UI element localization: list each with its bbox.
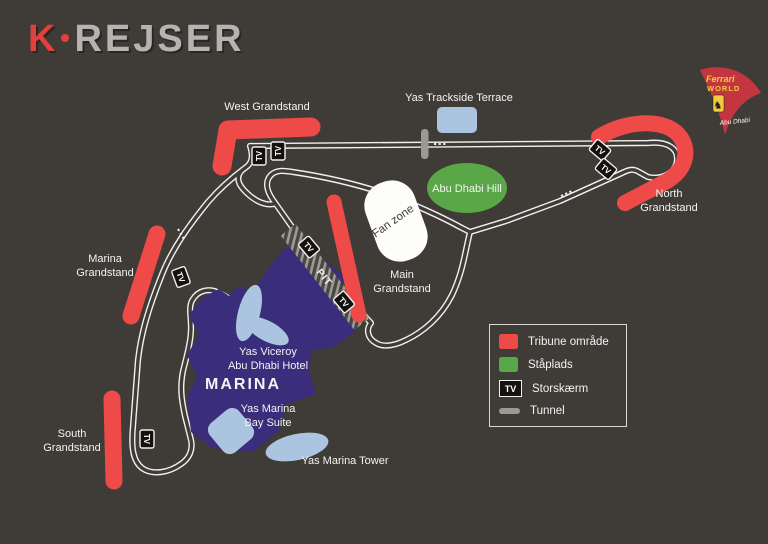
- tv-marker: TV: [252, 147, 266, 165]
- north-grandstand-label-2: Grandstand: [640, 202, 697, 214]
- legend-row-tribune: Tribune område: [499, 334, 620, 349]
- tv-swatch-icon: TV: [499, 380, 522, 397]
- circuit-map: PIT TV TV TV TV TV TV TV TV West Grandst…: [0, 0, 768, 544]
- legend-label-tunnel: Tunnel: [530, 405, 565, 417]
- ferrari-world-name-top: Ferrari: [706, 74, 735, 84]
- legend-label-staaplads: Ståplads: [528, 359, 573, 371]
- south-grandstand-shape: [112, 399, 114, 481]
- ferrari-world-name-bottom: WORLD: [707, 84, 740, 93]
- west-grandstand-label: West Grandstand: [224, 101, 309, 113]
- viceroy-label-1: Yas Viceroy: [239, 346, 297, 358]
- abu-dhabi-hill-label: Abu Dhabi Hill: [432, 183, 502, 195]
- yas-marina-tower-label: Yas Marina Tower: [301, 455, 388, 467]
- viceroy-label-2: Abu Dhabi Hotel: [228, 360, 308, 372]
- south-grandstand-label-2: Grandstand: [43, 442, 100, 454]
- tribune-swatch-icon: [499, 334, 518, 349]
- legend: Tribune område Ståplads TV Storskærm Tun…: [489, 324, 627, 427]
- legend-row-staaplads: Ståplads: [499, 357, 620, 372]
- tv-marker: TV: [171, 266, 190, 288]
- legend-label-tribune: Tribune område: [528, 336, 609, 348]
- legend-row-storskaerm: TV Storskærm: [499, 380, 620, 397]
- bay-suite-label-1: Yas Marina: [241, 403, 297, 415]
- tunnel-bar: [421, 129, 429, 159]
- north-grandstand-label-1: North: [656, 188, 683, 200]
- legend-label-storskaerm: Storskærm: [532, 383, 588, 395]
- marina-grandstand-label-2: Grandstand: [76, 267, 133, 279]
- trackside-terrace-label: Yas Trackside Terrace: [405, 92, 513, 104]
- staaplads-swatch-icon: [499, 357, 518, 372]
- trackside-terrace-shape: [437, 107, 477, 133]
- ferrari-world-logo: Ferrari WORLD ♞ Abu Dhabi: [700, 67, 761, 135]
- svg-text:TV: TV: [142, 434, 151, 445]
- main-grandstand-label-1: Main: [390, 269, 414, 281]
- svg-text:TV: TV: [255, 150, 264, 161]
- marina-grandstand-label-1: Marina: [88, 253, 123, 265]
- south-grandstand-label-1: South: [58, 428, 87, 440]
- marina-label: MARINA: [205, 376, 281, 393]
- tunnel-swatch-icon: [499, 408, 520, 414]
- svg-text:TV: TV: [274, 145, 283, 156]
- legend-row-tunnel: Tunnel: [499, 405, 620, 417]
- tv-marker: TV: [140, 430, 154, 448]
- tv-marker: TV: [271, 142, 285, 160]
- bay-suite-label-2: Bay Suite: [244, 417, 291, 429]
- prancing-horse-icon: ♞: [714, 101, 723, 112]
- main-grandstand-label-2: Grandstand: [373, 283, 430, 295]
